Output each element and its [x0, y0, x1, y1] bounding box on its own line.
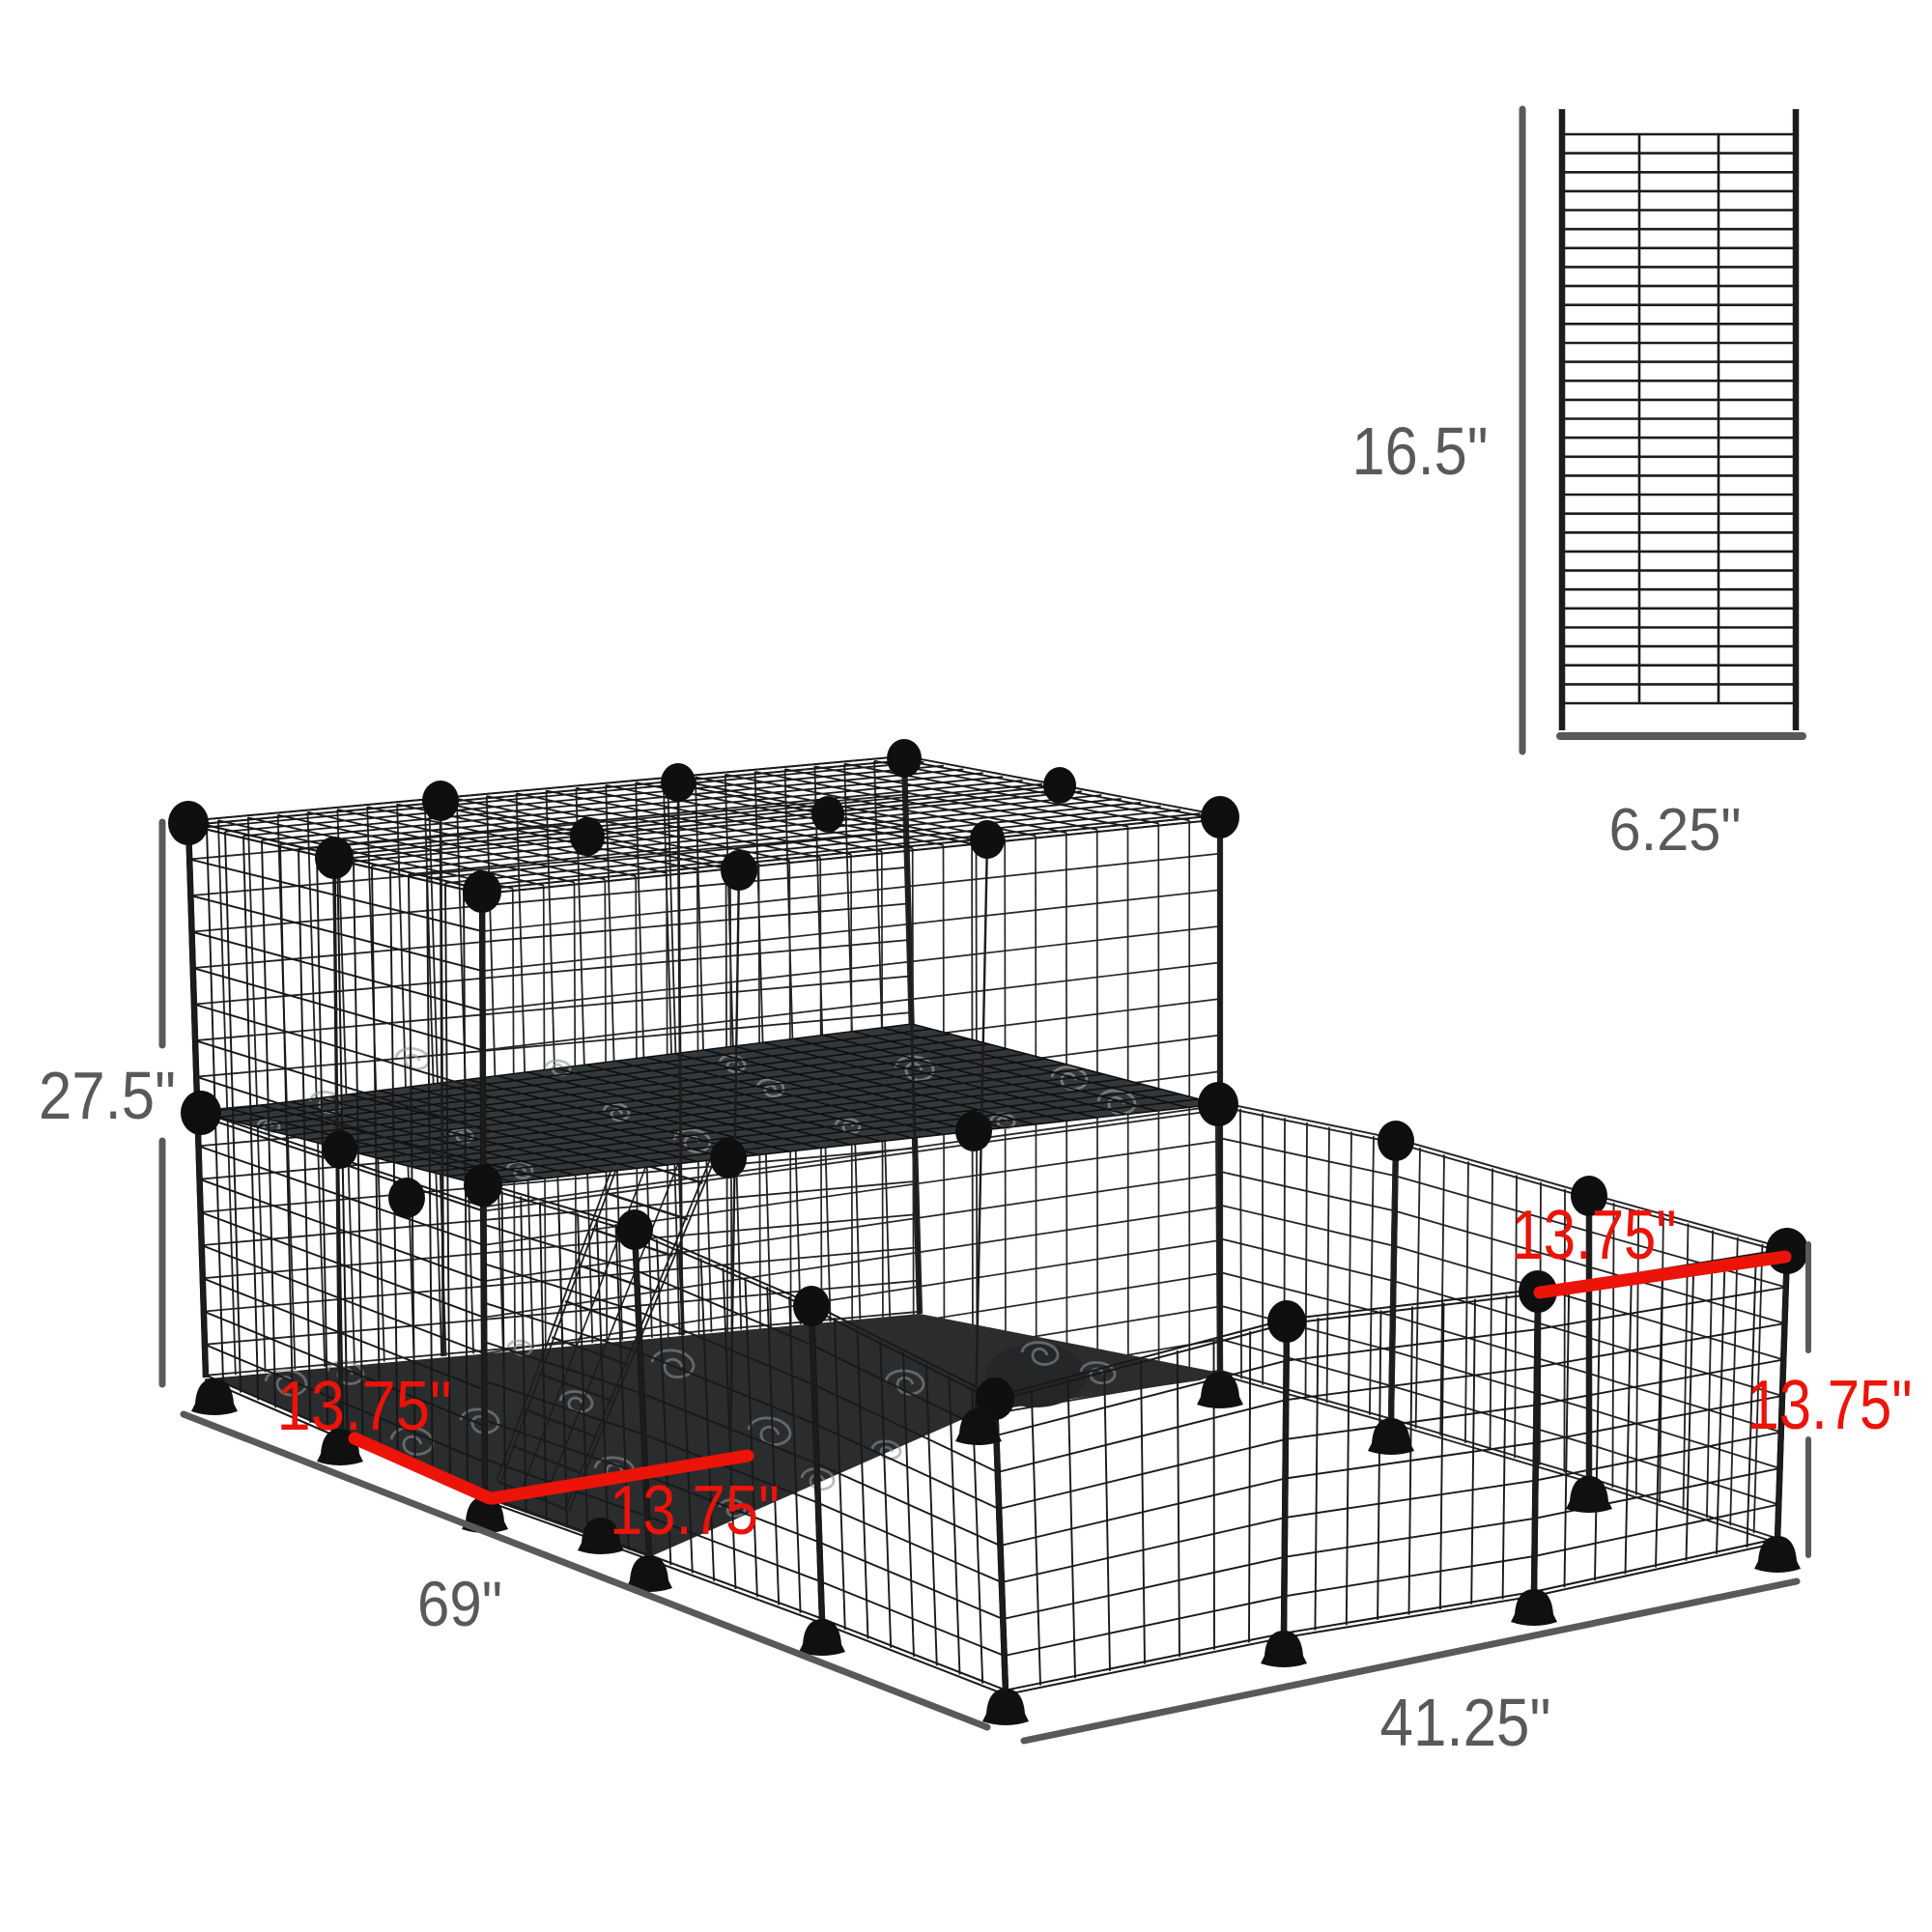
- svg-text:13.75": 13.75": [1747, 1367, 1913, 1444]
- svg-text:27.5": 27.5": [39, 1058, 176, 1133]
- svg-text:13.75": 13.75": [1512, 1197, 1677, 1274]
- svg-text:69": 69": [417, 1568, 502, 1639]
- svg-text:6.25": 6.25": [1609, 797, 1742, 864]
- svg-text:41.25": 41.25": [1380, 1685, 1551, 1760]
- svg-text:16.5": 16.5": [1352, 413, 1489, 489]
- svg-text:13.75": 13.75": [610, 1472, 780, 1549]
- svg-text:13.75": 13.75": [277, 1368, 452, 1445]
